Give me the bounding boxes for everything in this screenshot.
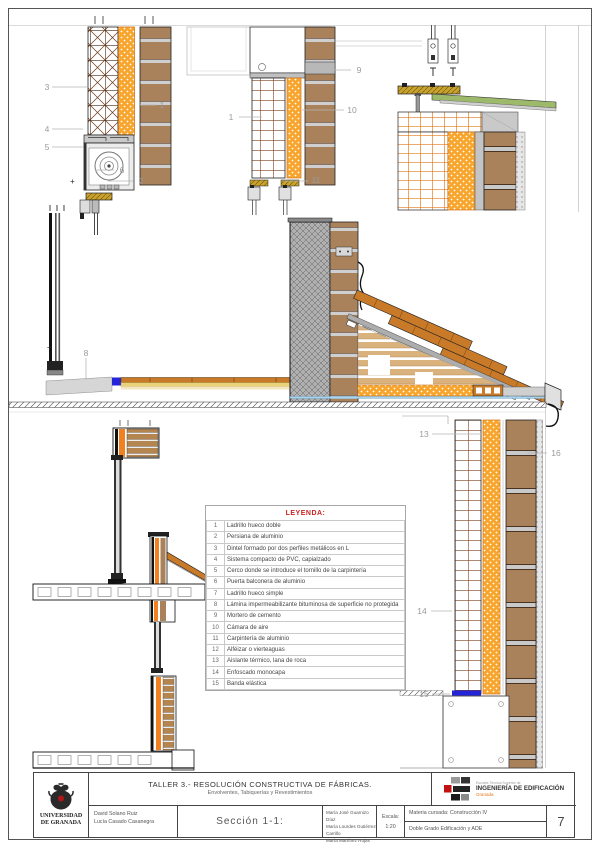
school-city: Granada <box>476 792 564 797</box>
author-name: David Solano Ruiz <box>94 811 177 819</box>
legend-item-label: Aislante térmico, lana de roca <box>225 656 405 667</box>
detail-window-head: + <box>70 16 171 235</box>
legend-item-number: 6 <box>207 577 225 588</box>
university-crest-icon <box>48 783 74 811</box>
legend-row: 9Mortero de cemento <box>207 611 405 622</box>
legend-item-number: 15 <box>207 678 225 689</box>
legend-item-number: 4 <box>207 554 225 565</box>
detail-wall-right <box>400 416 543 768</box>
legend-item-number: 2 <box>207 532 225 543</box>
author-name: María Lourdes Gutiérrez Carrillo <box>326 824 376 838</box>
author-name: María José Guarnizo Díaz <box>326 810 376 824</box>
sheet-title-cell: TALLER 3.- RESOLUCIÓN CONSTRUCTIVA DE FÁ… <box>89 773 431 806</box>
hatched-wall <box>290 222 330 402</box>
legend-item-number: 8 <box>207 599 225 610</box>
detail-main-section: + <box>9 205 571 426</box>
authors-left: David Solano RuizLucía Casado Casanegra <box>89 806 177 837</box>
legend-item-number: 11 <box>207 633 225 644</box>
legend-item-label: Cerco donde se introduce el tornillo de … <box>225 566 405 577</box>
section-label: Sección 1-1: <box>177 806 322 837</box>
authors-right: María José Guarnizo DíazMaría Lourdes Gu… <box>322 806 376 837</box>
legend-row: 3Dintel formado por dos perfiles metálic… <box>207 543 405 554</box>
legend-item-number: 5 <box>207 566 225 577</box>
legend-item-number: 3 <box>207 543 225 554</box>
legend-item-label: Persiana de aluminio <box>225 532 405 543</box>
legend-items: 1Ladrillo hueco doble2Persiana de alumin… <box>206 520 405 690</box>
callout-8: 8 <box>84 349 89 358</box>
legend-item-label: Ladrillo hueco doble <box>225 521 405 532</box>
detail-sill-flashing <box>398 25 556 210</box>
legend-item-number: 7 <box>207 588 225 599</box>
svg-text:+: + <box>47 343 52 352</box>
legend-item-number: 12 <box>207 644 225 655</box>
callout-16: 16 <box>551 449 560 458</box>
gutter <box>546 404 558 426</box>
svg-text:+: + <box>70 177 75 186</box>
legend-row: 5Cerco donde se introduce el tornillo de… <box>207 566 405 577</box>
school-logo-icon <box>444 777 472 802</box>
callout-11: 11 <box>312 176 321 185</box>
detail-facade-small <box>33 420 206 770</box>
callout-1: 1 <box>229 113 234 122</box>
degree-row: Doble Grado Edificación y ADE <box>405 822 546 838</box>
legend-row: 6Puerta balconera de aluminio <box>207 577 405 588</box>
legend-row: 11Carpintería de aluminio <box>207 633 405 644</box>
callout-5: 5 <box>45 143 50 152</box>
drawing-sheet: + <box>0 0 600 848</box>
legend-item-label: Puerta balconera de aluminio <box>225 577 405 588</box>
title-block: UNIVERSIDAD DE GRANADA TALLER 3.- RESOLU… <box>33 772 575 838</box>
callout-14: 14 <box>417 607 426 616</box>
callout-10: 10 <box>347 106 356 115</box>
legend-item-number: 1 <box>207 521 225 532</box>
legend-item-label: Alféizar o vierteaguas <box>225 644 405 655</box>
callout-4: 4 <box>45 125 50 134</box>
sheet-number: 7 <box>546 806 575 837</box>
legend-row: 4Sistema compacto de PVC, capialzado <box>207 554 405 565</box>
legend-item-label: Enfoscado monocapa <box>225 667 405 678</box>
legend-row: 7Ladrillo hueco simple <box>207 588 405 599</box>
legend-item-label: Mortero de cemento <box>225 611 405 622</box>
legend-title: LEYENDA: <box>206 506 405 520</box>
legend-row: 14Enfoscado monocapa <box>207 667 405 678</box>
author-name: Lucía Casado Casanegra <box>94 819 177 827</box>
elastic-band-blue <box>452 691 481 696</box>
legend-row: 2Persiana de aluminio <box>207 532 405 543</box>
legend-row: 8Lámina impermeabilizante bituminosa de … <box>207 599 405 610</box>
callout-6: 6 <box>120 166 125 175</box>
legend-item-number: 10 <box>207 622 225 633</box>
legend-row: 15Banda elástica <box>207 678 405 689</box>
callout-3: 3 <box>45 83 50 92</box>
callout-2: 2 <box>139 177 144 186</box>
legend-row: 12Alféizar o vierteaguas <box>207 644 405 655</box>
course-row: Materia cursada: Construcción IV <box>405 806 546 822</box>
callout-1: 1 <box>160 101 165 110</box>
scale-cell: Escala: 1:20 <box>376 806 404 837</box>
legend-item-label: Ladrillo hueco simple <box>225 588 405 599</box>
scale-value: 1:20 <box>385 824 395 830</box>
school-name: INGENIERÍA DE EDIFICACIÓN <box>476 785 564 792</box>
elastic-band-blue <box>112 378 121 386</box>
legend-row: 13Aislante térmico, lana de roca <box>207 656 405 667</box>
legend-item-label: Carpintería de aluminio <box>225 633 405 644</box>
legend-item-label: Dintel formado por dos perfiles metálico… <box>225 543 405 554</box>
legend-row: 1Ladrillo hueco doble <box>207 521 405 532</box>
construction-drawing: + <box>0 0 600 848</box>
legend-item-label: Lámina impermeabilizante bituminosa de s… <box>225 599 405 610</box>
university-name: UNIVERSIDAD DE GRANADA <box>40 813 82 828</box>
legend-item-number: 14 <box>207 667 225 678</box>
legend-item-label: Cámara de aire <box>225 622 405 633</box>
callout-15: 15 <box>419 690 428 699</box>
legend-table: LEYENDA: 1Ladrillo hueco doble2Persiana … <box>205 505 406 691</box>
detail-slab-junction <box>187 27 335 215</box>
callout-13: 13 <box>419 430 428 439</box>
course-cell: Materia cursada: Construcción IV Doble G… <box>404 806 546 837</box>
callout-9: 9 <box>357 66 362 75</box>
school-logo-cell: Escuela Técnica Superior de INGENIERÍA D… <box>431 773 576 806</box>
legend-item-label: Sistema compacto de PVC, capialzado <box>225 554 405 565</box>
scale-label: Escala: <box>382 814 399 820</box>
university-logo-cell: UNIVERSIDAD DE GRANADA <box>34 773 89 837</box>
sheet-subtitle: Envolventes, Tabiquerías y Revestimiento… <box>89 790 431 796</box>
sheet-title: TALLER 3.- RESOLUCIÓN CONSTRUCTIVA DE FÁ… <box>89 780 431 789</box>
ceiling-band <box>9 402 546 408</box>
legend-item-number: 9 <box>207 611 225 622</box>
author-name: María Martínez Rojas <box>326 838 376 845</box>
legend-row: 10Cámara de aire <box>207 622 405 633</box>
legend-item-label: Banda elástica <box>225 678 405 689</box>
legend-item-number: 13 <box>207 656 225 667</box>
